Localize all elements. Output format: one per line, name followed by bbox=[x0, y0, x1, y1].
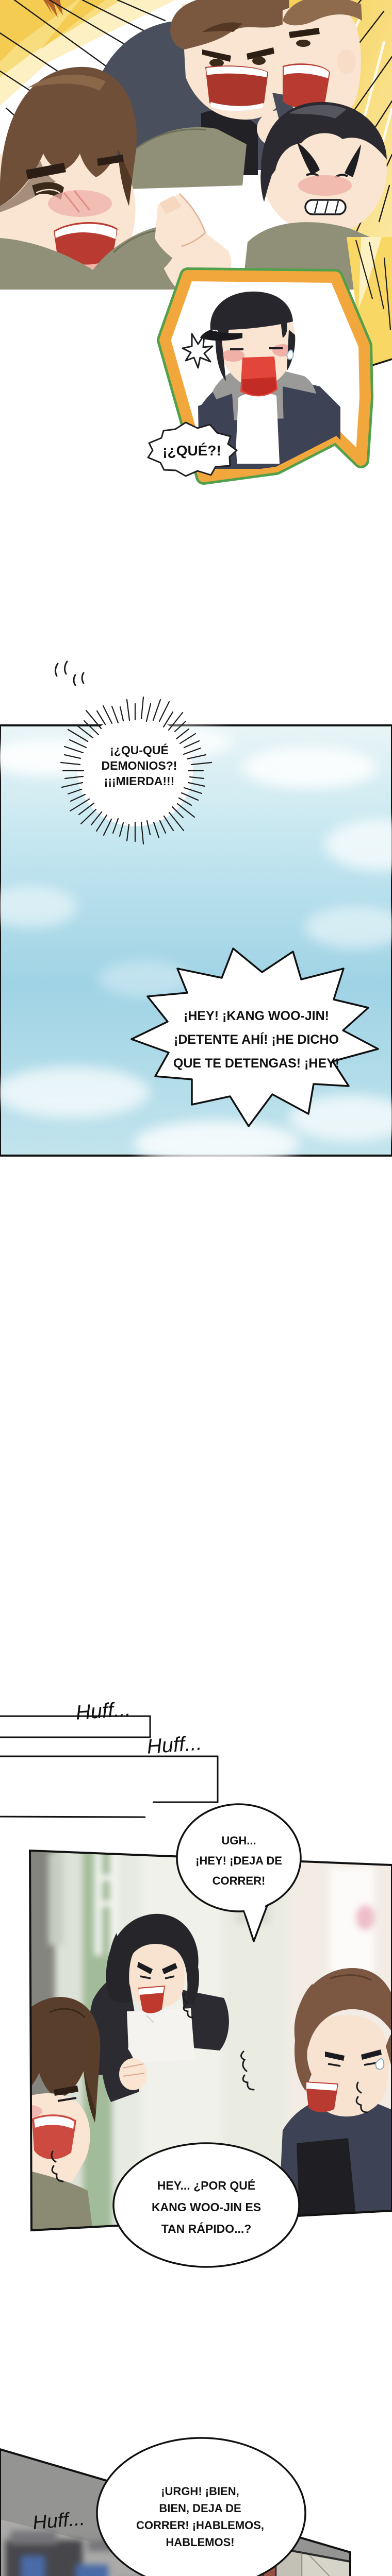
svg-text:HEY... ¿POR QUÉ: HEY... ¿POR QUÉ bbox=[157, 2178, 255, 2192]
svg-text:¡HEY! ¡KANG WOO-JIN!: ¡HEY! ¡KANG WOO-JIN! bbox=[184, 1009, 329, 1023]
svg-text:DEMONIOS?!: DEMONIOS?! bbox=[102, 759, 177, 772]
svg-text:TAN RÁPIDO...?: TAN RÁPIDO...? bbox=[161, 2222, 252, 2235]
svg-text:Huff...: Huff... bbox=[146, 1732, 203, 1758]
svg-text:KANG WOO-JIN ES: KANG WOO-JIN ES bbox=[152, 2200, 261, 2214]
svg-text:UGH...: UGH... bbox=[221, 1834, 256, 1847]
svg-text:¡¿QU-QUÉ: ¡¿QU-QUÉ bbox=[110, 743, 169, 757]
svg-text:¡URGH! ¡BIEN,: ¡URGH! ¡BIEN, bbox=[161, 2485, 239, 2498]
svg-text:CORRER!: CORRER! bbox=[213, 1874, 266, 1887]
svg-text:BIEN, DEJA DE: BIEN, DEJA DE bbox=[159, 2502, 241, 2515]
svg-text:¡¿QUÉ?!: ¡¿QUÉ?! bbox=[162, 443, 221, 459]
svg-text:Huff...: Huff... bbox=[32, 2508, 86, 2534]
svg-text:QUE TE DETENGAS! ¡HEY!: QUE TE DETENGAS! ¡HEY! bbox=[173, 1056, 339, 1071]
svg-text:¡HEY! ¡DEJA DE: ¡HEY! ¡DEJA DE bbox=[195, 1854, 282, 1867]
svg-text:¡¡¡MIERDA!!!: ¡¡¡MIERDA!!! bbox=[104, 774, 175, 788]
svg-text:HABLEMOS!: HABLEMOS! bbox=[166, 2536, 234, 2549]
svg-text:¡DETENTE AHÍ! ¡HE DICHO: ¡DETENTE AHÍ! ¡HE DICHO bbox=[174, 1032, 339, 1047]
svg-text:Huff...: Huff... bbox=[75, 1698, 132, 1724]
svg-text:CORRER! ¡HABLEMOS,: CORRER! ¡HABLEMOS, bbox=[136, 2519, 264, 2532]
